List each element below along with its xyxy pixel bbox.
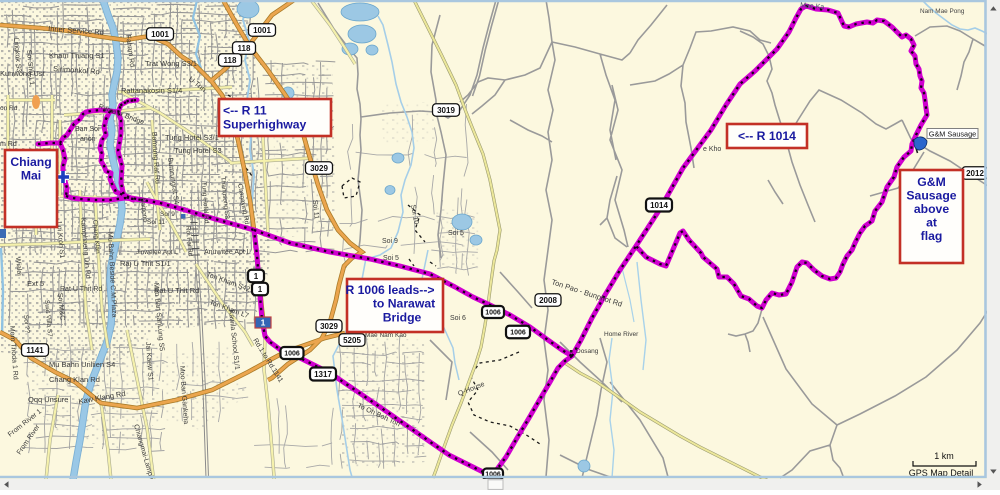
svg-text:1006: 1006: [485, 310, 501, 317]
svg-text:1006: 1006: [284, 351, 300, 358]
svg-text:Rat U Thit Rd: Rat U Thit Rd: [60, 286, 102, 293]
svg-text:2012: 2012: [966, 169, 984, 178]
svg-text:Tung Hotel S3: Tung Hotel S3: [174, 146, 222, 155]
svg-text:Ban Soi: Ban Soi: [75, 126, 100, 133]
svg-text:1001: 1001: [253, 26, 271, 35]
svg-text:3019: 3019: [437, 106, 455, 115]
svg-text:Qqq Unsure: Qqq Unsure: [28, 395, 68, 404]
svg-text:Soi 11: Soi 11: [147, 219, 165, 226]
svg-text:1141: 1141: [26, 346, 44, 355]
svg-text:Dosang: Dosang: [576, 348, 599, 355]
svg-text:Raj U Thit S1/1: Raj U Thit S1/1: [120, 259, 171, 268]
svg-text:Soi 9: Soi 9: [160, 211, 175, 218]
svg-text:1 km: 1 km: [934, 451, 954, 461]
svg-text:Kham Thiang S1: Kham Thiang S1: [49, 51, 105, 60]
svg-text:Nam Mae Pong: Nam Mae Pong: [920, 8, 965, 15]
svg-text:G&M: G&M: [917, 175, 945, 189]
svg-text:G&M Sausage: G&M Sausage: [929, 129, 976, 138]
svg-text:Superhighway: Superhighway: [223, 118, 307, 132]
svg-text:<-- R 11: <-- R 11: [223, 104, 267, 118]
svg-text:Soi 9: Soi 9: [382, 238, 398, 245]
svg-text:m Rd: m Rd: [0, 141, 17, 148]
svg-text:Chiang: Chiang: [10, 155, 51, 169]
svg-text:R 1006 leads-->: R 1006 leads-->: [345, 283, 434, 297]
svg-text:Trat Wong S3/1: Trat Wong S3/1: [145, 59, 197, 68]
svg-text:Rat U Thit Rd: Rat U Thit Rd: [154, 286, 199, 295]
svg-text:3029: 3029: [320, 322, 338, 331]
svg-text:5205: 5205: [343, 336, 361, 345]
svg-text:anon: anon: [80, 136, 96, 143]
svg-text:Soi 5: Soi 5: [448, 230, 464, 237]
svg-text:118: 118: [224, 56, 237, 65]
svg-text:Chang Klan Rd: Chang Klan Rd: [49, 375, 100, 384]
svg-text:Jinwelee Apt L: Jinwelee Apt L: [136, 249, 178, 256]
svg-text:Tung Hotel S3/1: Tung Hotel S3/1: [165, 133, 219, 142]
svg-text:at: at: [926, 216, 937, 230]
svg-text:Ext 5: Ext 5: [27, 279, 44, 288]
svg-text:1: 1: [258, 285, 263, 294]
svg-text:Sausage: Sausage: [906, 189, 956, 203]
svg-text:3029: 3029: [310, 164, 328, 173]
svg-text:118: 118: [238, 44, 251, 53]
svg-text:1317: 1317: [314, 370, 332, 379]
svg-text:1014: 1014: [650, 201, 668, 210]
svg-text:1: 1: [261, 318, 266, 328]
svg-text:Soi 6: Soi 6: [450, 315, 466, 322]
svg-text:1001: 1001: [151, 30, 169, 39]
svg-text:Home River: Home River: [604, 331, 639, 338]
svg-text:1: 1: [254, 272, 259, 281]
svg-text:e Kho: e Kho: [703, 146, 721, 153]
svg-text:flag: flag: [921, 229, 943, 243]
svg-text:1006: 1006: [510, 330, 526, 337]
svg-text:2008: 2008: [539, 296, 557, 305]
svg-text:<-- R 1014: <-- R 1014: [738, 129, 796, 143]
svg-text:Rattanakosin S1/4: Rattanakosin S1/4: [121, 86, 182, 95]
svg-text:Anuwitee Apt L: Anuwitee Apt L: [204, 249, 251, 256]
svg-text:on Rd: on Rd: [0, 105, 18, 112]
svg-text:Mai: Mai: [21, 168, 41, 182]
svg-text:Mu Bahn Unliien S4: Mu Bahn Unliien S4: [49, 360, 115, 369]
svg-text:above: above: [914, 202, 949, 216]
svg-text:Soi 5: Soi 5: [383, 255, 399, 262]
svg-text:to Narawat: to Narawat: [373, 297, 435, 311]
svg-text:Bridge: Bridge: [383, 310, 422, 324]
